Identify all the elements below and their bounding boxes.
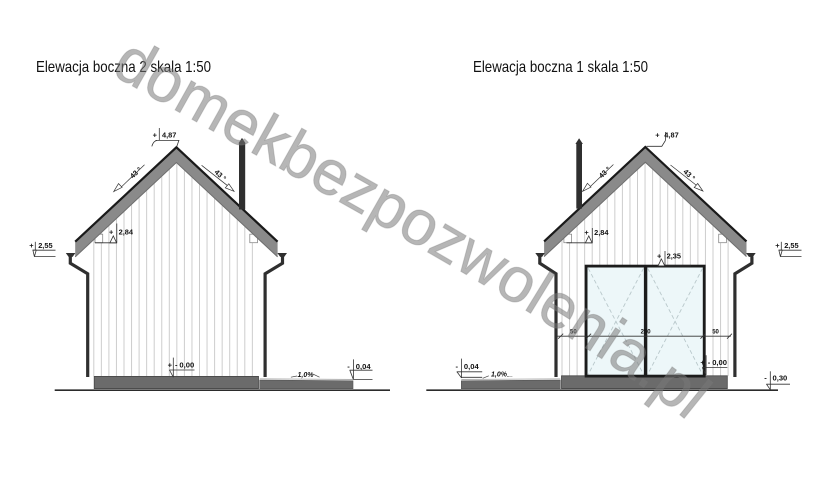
svg-text:-: - (175, 360, 178, 369)
svg-text:50: 50 (712, 330, 719, 336)
svg-text:2,84: 2,84 (594, 228, 609, 237)
svg-text:-: - (456, 362, 459, 371)
svg-text:0,30: 0,30 (773, 373, 788, 382)
svg-text:-: - (708, 358, 711, 367)
svg-text:2,55: 2,55 (784, 241, 798, 250)
svg-text:43 °: 43 ° (213, 167, 229, 182)
svg-text:0,04: 0,04 (464, 362, 480, 371)
svg-text:0,04: 0,04 (356, 362, 372, 371)
svg-text:43 °: 43 ° (682, 167, 698, 182)
svg-text:2,84: 2,84 (119, 227, 134, 236)
svg-text:-: - (347, 362, 350, 371)
svg-text:0,00: 0,00 (179, 360, 194, 369)
svg-text:+: + (109, 227, 114, 236)
svg-text:-: - (764, 373, 767, 382)
svg-text:4,87: 4,87 (664, 130, 678, 139)
svg-text:+: + (168, 360, 173, 369)
svg-text:+: + (775, 241, 780, 250)
svg-text:+: + (655, 130, 660, 139)
svg-text:1,0%: 1,0% (491, 372, 508, 379)
svg-text:1,0%: 1,0% (298, 372, 315, 379)
svg-text:+: + (657, 252, 662, 261)
svg-text:Elewacja boczna 1 skala 1:50: Elewacja boczna 1 skala 1:50 (473, 59, 648, 76)
svg-text:+: + (153, 130, 158, 139)
svg-text:0,00: 0,00 (712, 358, 727, 367)
svg-text:4,87: 4,87 (162, 130, 176, 139)
svg-text:2,55: 2,55 (38, 241, 52, 250)
svg-text:2,35: 2,35 (667, 252, 681, 261)
svg-text:+: + (29, 241, 34, 250)
svg-text:+: + (584, 228, 589, 237)
